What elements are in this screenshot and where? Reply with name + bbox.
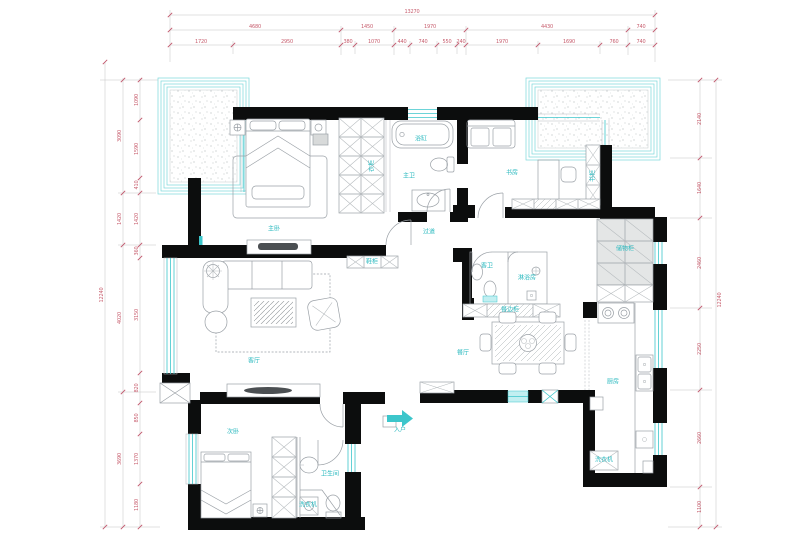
dim-text-12240: 12240: [99, 288, 105, 303]
dim-text-740: 740: [637, 39, 646, 45]
dim-text-760: 760: [610, 39, 619, 45]
room-label-shower-room: 淋浴房: [518, 275, 536, 282]
room-label-guest-bath: 客卫: [481, 263, 493, 270]
dim-text-4020: 4020: [117, 312, 123, 324]
dim-text-1970: 1970: [424, 24, 436, 30]
room-label-washer-kitchen: 洗衣机: [595, 457, 613, 464]
dim-text-740: 740: [637, 24, 646, 30]
dim-text-3690: 3690: [117, 453, 123, 465]
dim-text-2950: 2950: [281, 39, 293, 45]
room-label-shoe-cabinet: 鞋柜: [366, 259, 378, 266]
dim-text-850: 850: [134, 414, 140, 423]
room-label-master-bedroom: 主卧: [268, 226, 280, 233]
room-label-living-room: 客厅: [248, 358, 260, 365]
dim-text-550: 550: [443, 39, 452, 45]
dim-text-12240: 12240: [717, 293, 723, 308]
dim-text-1970: 1970: [496, 39, 508, 45]
room-label-storage-cabinet: 储物柜: [616, 246, 634, 253]
dim-text-1640: 1640: [697, 182, 703, 194]
dim-text-1090: 1090: [134, 94, 140, 106]
room-label-study: 书房: [506, 170, 518, 177]
dim-text-360: 360: [134, 247, 140, 256]
dim-text-2660: 2660: [697, 432, 703, 444]
dim-text-1450: 1450: [361, 24, 373, 30]
room-label-entry: 入户: [394, 427, 406, 434]
dim-text-240: 240: [457, 39, 466, 45]
dim-text-380: 380: [344, 39, 353, 45]
room-label-bathroom-2: 卫生间: [321, 471, 339, 478]
dim-text-2460: 2460: [697, 257, 703, 269]
dim-text-740: 740: [419, 39, 428, 45]
dim-text-1100: 1100: [697, 501, 703, 513]
dim-text-1180: 1180: [134, 499, 140, 511]
room-label-bathtub: 浴缸: [415, 136, 427, 143]
dim-text-1070: 1070: [368, 39, 380, 45]
dim-text-13270: 13270: [405, 9, 420, 15]
room-label-washer-2: 洗衣机: [299, 502, 317, 509]
text-overlay: 主卧衣柜浴缸主卫书房书柜储物柜过道鞋柜客厅客卫淋浴房餐边柜餐厅厨房洗衣机次卧卫生…: [0, 0, 795, 537]
room-label-bedroom-2: 次卧: [227, 429, 239, 436]
dim-text-4430: 4430: [541, 24, 553, 30]
room-label-sideboard: 餐边柜: [501, 307, 519, 314]
dim-text-3090: 3090: [117, 130, 123, 142]
dim-text-3150: 3150: [134, 309, 140, 321]
room-label-master-bath: 主卫: [403, 173, 415, 180]
dim-text-2140: 2140: [697, 113, 703, 125]
dim-text-1420: 1420: [117, 213, 123, 225]
room-label-master-wardrobe: 衣柜: [369, 160, 376, 172]
dim-text-1420: 1420: [134, 213, 140, 225]
floor-plan-page: 主卧衣柜浴缸主卫书房书柜储物柜过道鞋柜客厅客卫淋浴房餐边柜餐厅厨房洗衣机次卧卫生…: [0, 0, 795, 537]
dim-text-1590: 1590: [134, 143, 140, 155]
room-label-hallway: 过道: [423, 229, 435, 236]
dim-text-2250: 2250: [697, 343, 703, 355]
dim-text-410: 410: [134, 181, 140, 190]
dim-text-1690: 1690: [563, 39, 575, 45]
dim-text-4680: 4680: [249, 24, 261, 30]
dim-text-1720: 1720: [195, 39, 207, 45]
room-label-dining-room: 餐厅: [457, 350, 469, 357]
dim-text-1370: 1370: [134, 453, 140, 465]
room-label-kitchen: 厨房: [607, 379, 619, 386]
dim-text-440: 440: [398, 39, 407, 45]
dim-text-820: 820: [134, 384, 140, 393]
room-label-bookcase: 书柜: [590, 170, 597, 182]
